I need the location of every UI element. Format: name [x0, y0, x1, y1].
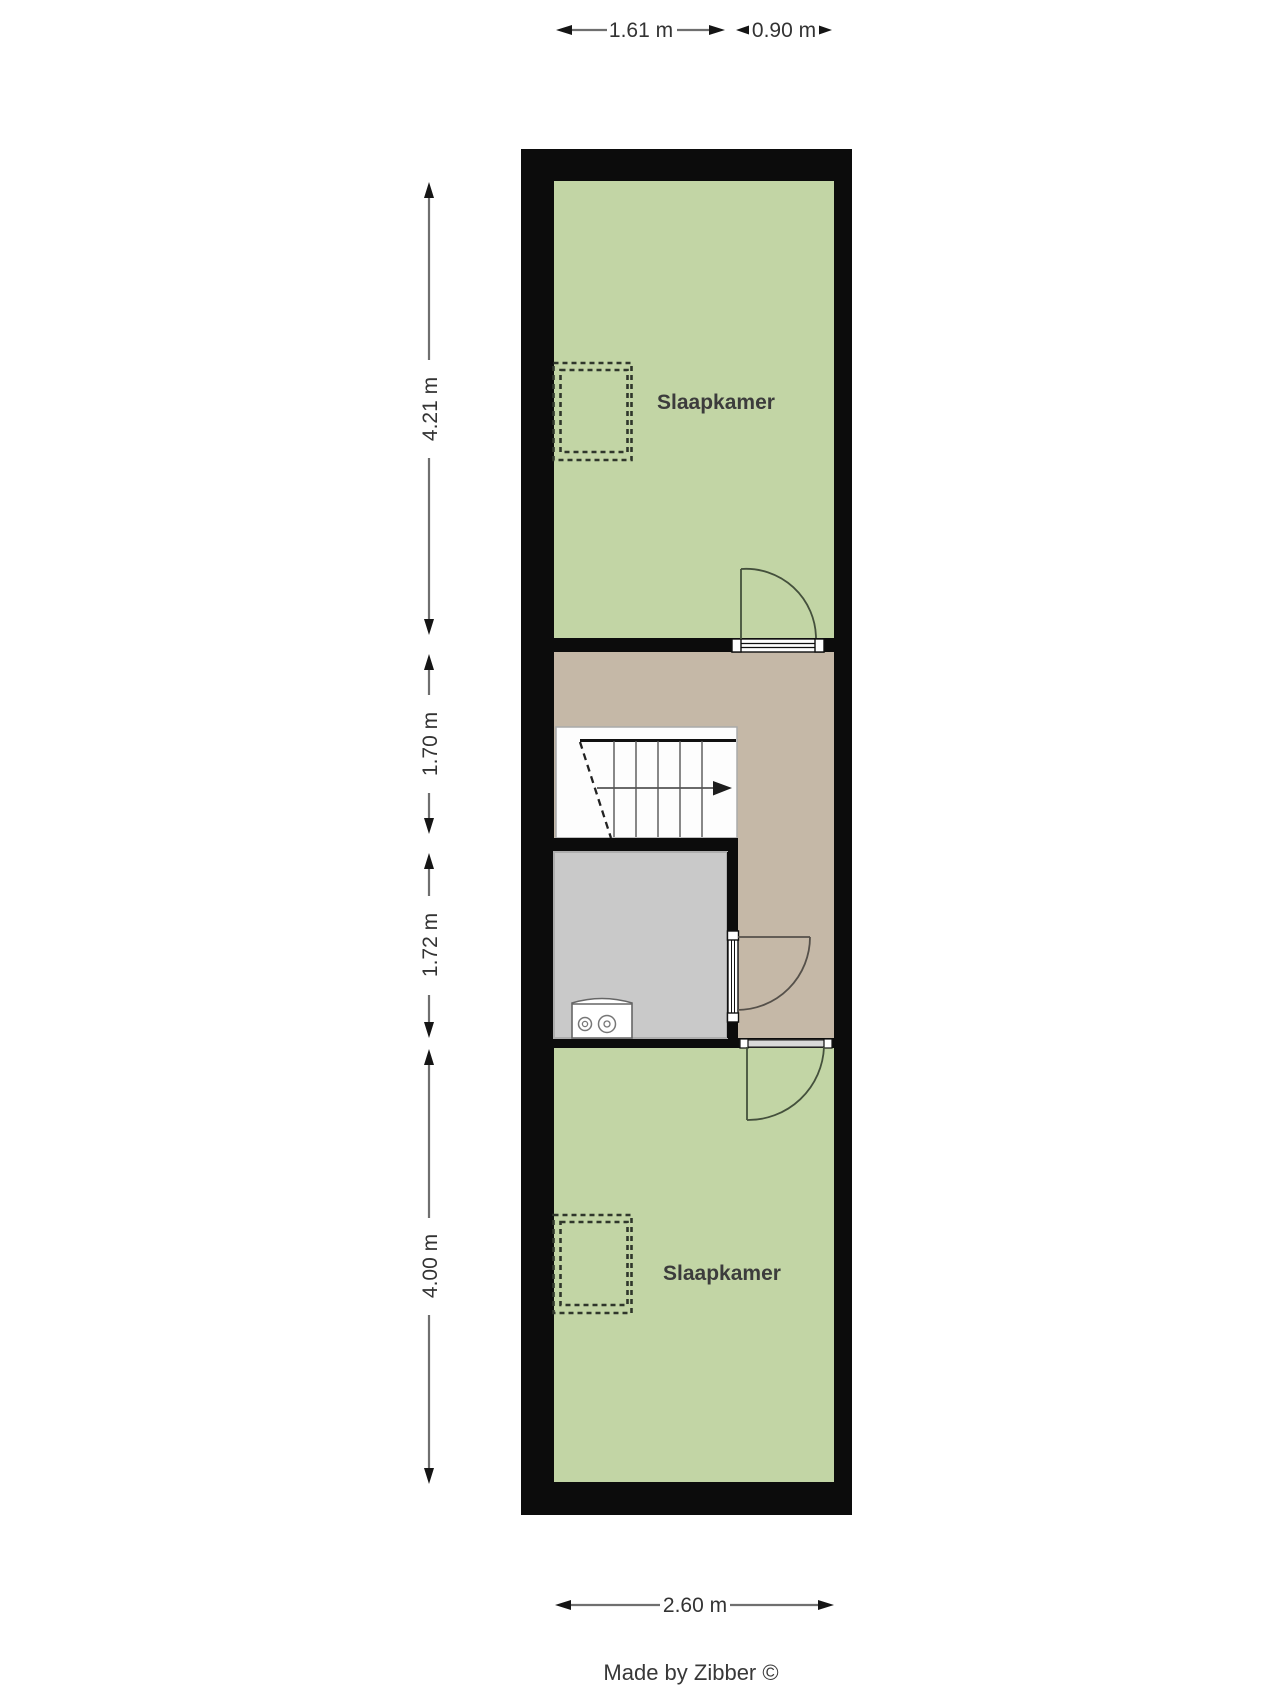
- svg-text:1.72 m: 1.72 m: [419, 913, 442, 977]
- svg-text:1.61 m: 1.61 m: [609, 19, 673, 42]
- svg-text:Slaapkamer: Slaapkamer: [663, 1262, 781, 1285]
- svg-text:2.60 m: 2.60 m: [663, 1594, 727, 1617]
- svg-text:1.70 m: 1.70 m: [419, 712, 442, 776]
- svg-text:4.21 m: 4.21 m: [419, 377, 442, 441]
- svg-text:0.90 m: 0.90 m: [752, 19, 816, 42]
- svg-text:Slaapkamer: Slaapkamer: [657, 391, 775, 414]
- svg-text:Made by Zibber ©: Made by Zibber ©: [603, 1660, 778, 1685]
- svg-text:4.00 m: 4.00 m: [419, 1234, 442, 1298]
